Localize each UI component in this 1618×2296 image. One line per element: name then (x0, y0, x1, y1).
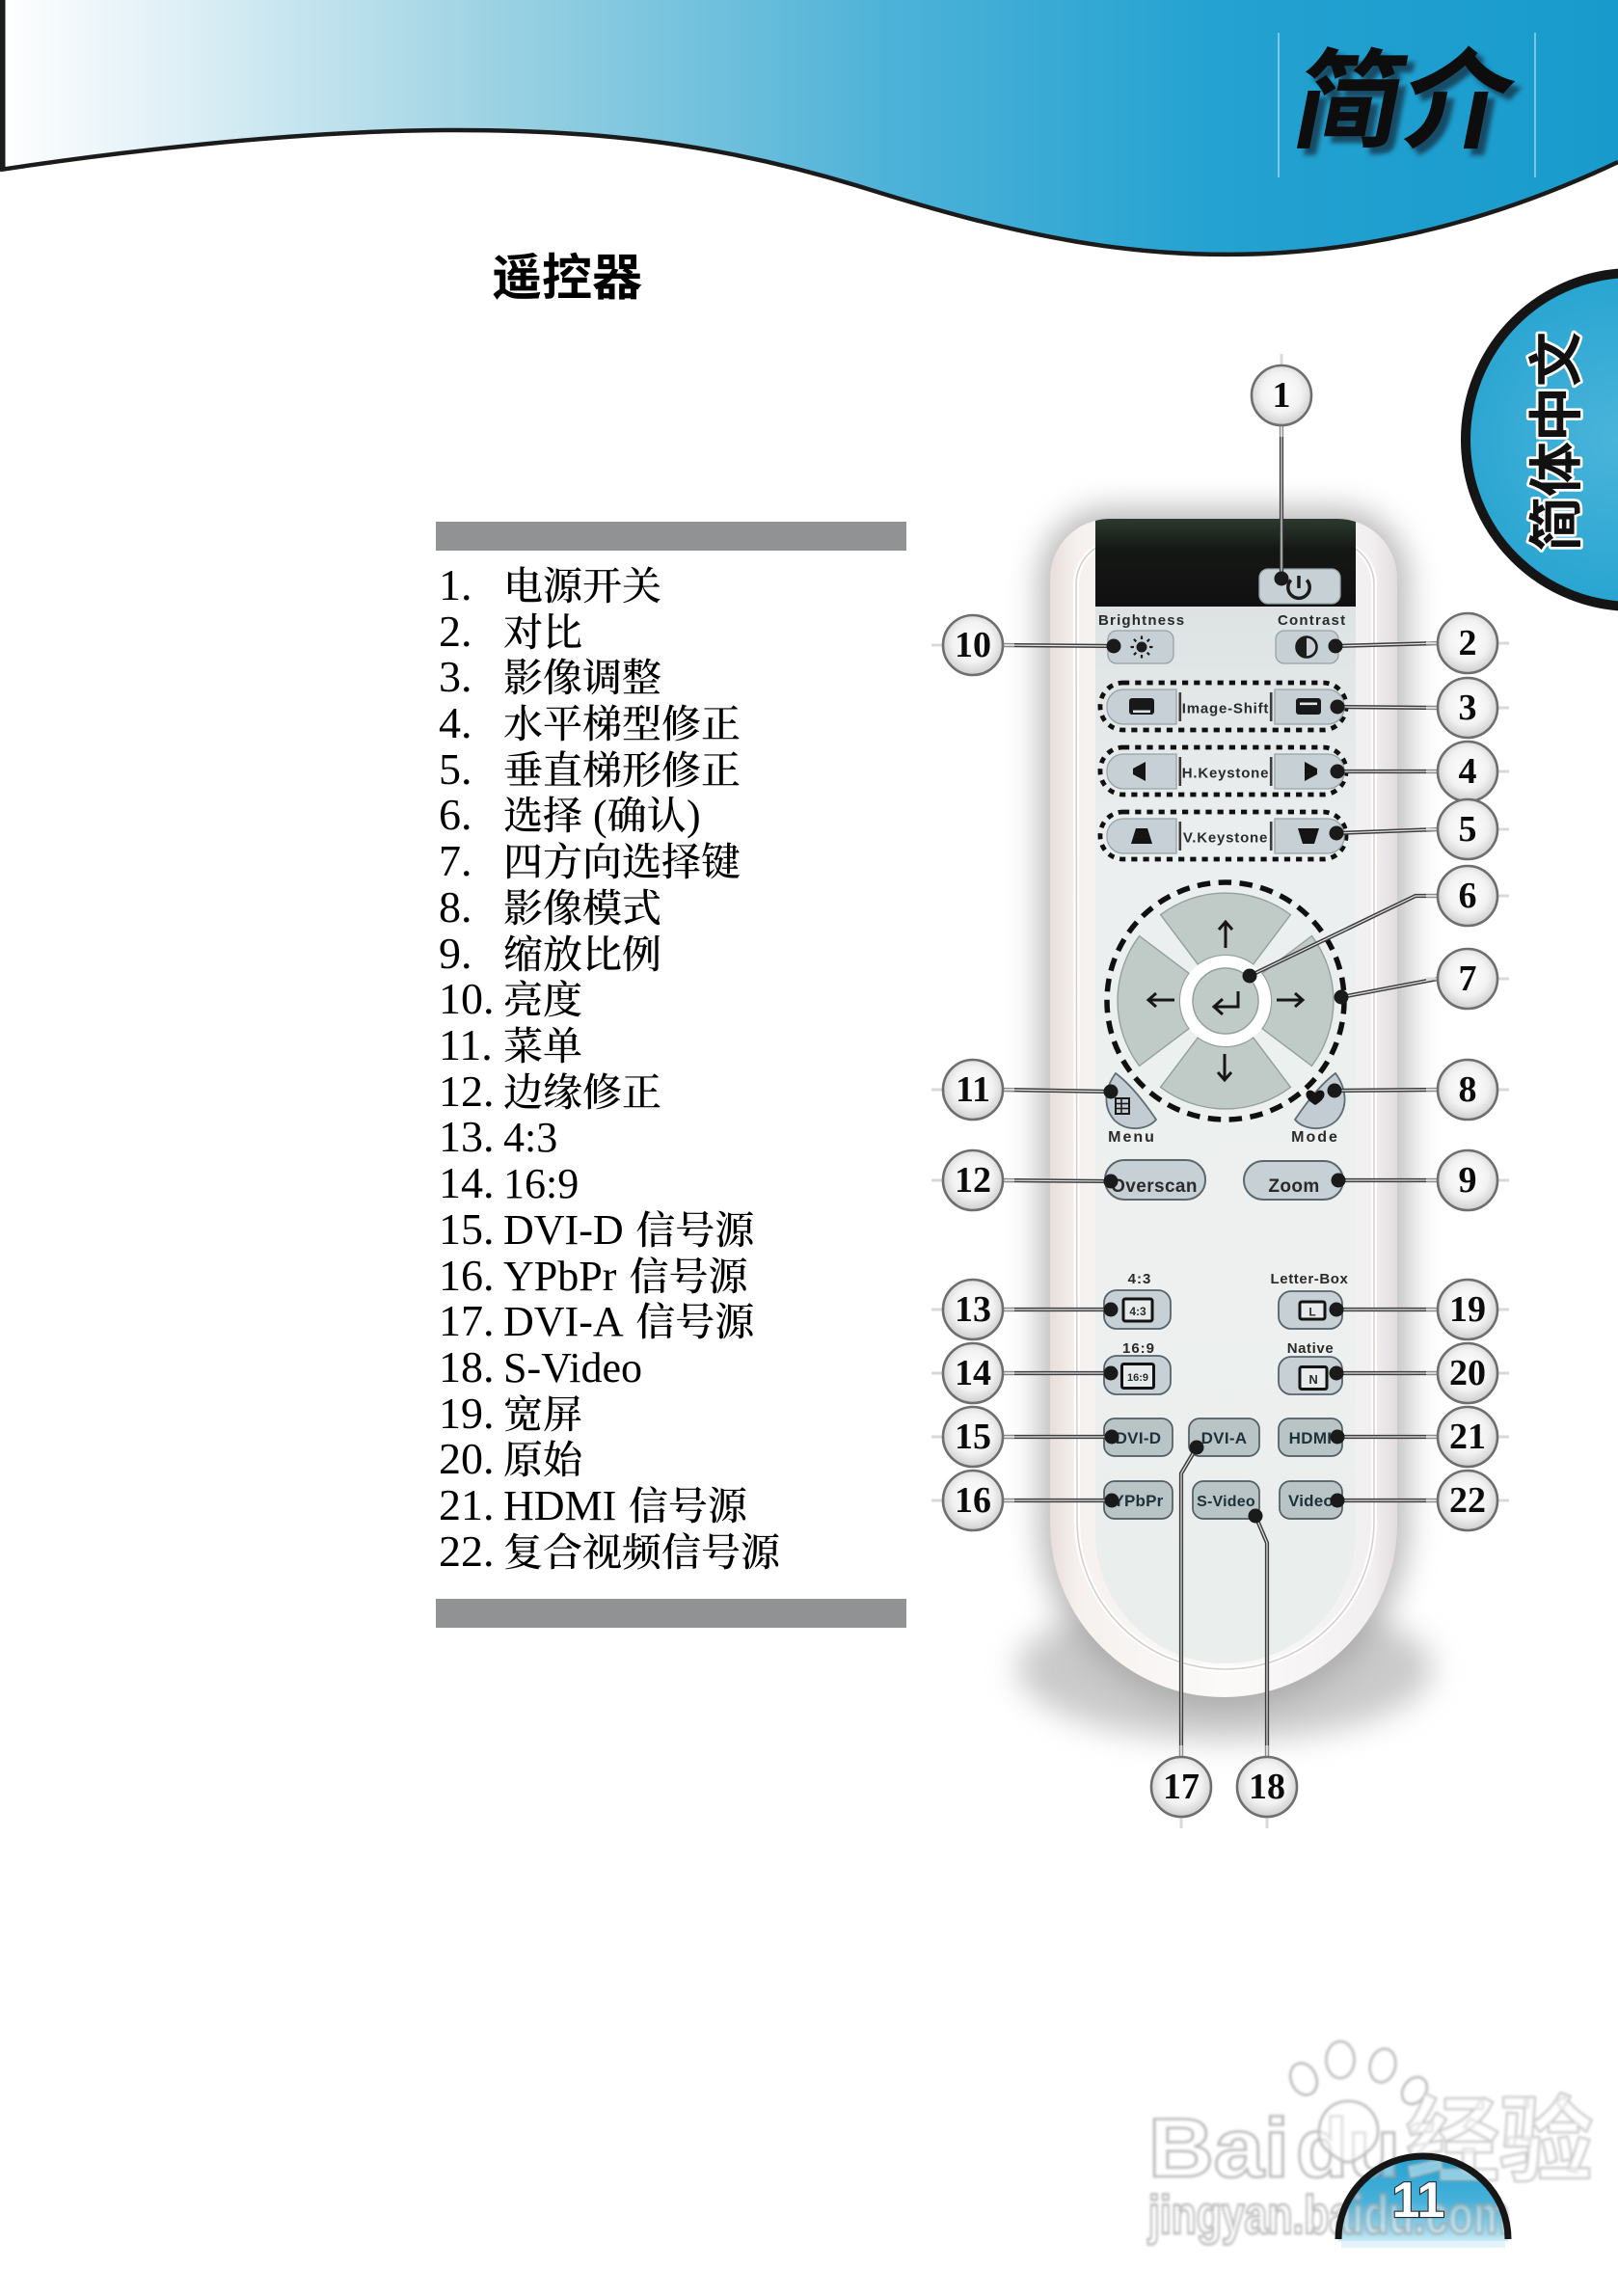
svg-text:19.: 19. (439, 1389, 495, 1438)
svg-text:DVI-D: DVI-D (1116, 1429, 1162, 1447)
svg-text:(: ( (593, 792, 607, 839)
svg-text:Bai: Bai (1148, 2102, 1289, 2195)
svg-text:7: 7 (1459, 959, 1477, 999)
svg-text:13.: 13. (439, 1112, 495, 1161)
svg-text:14.: 14. (439, 1158, 495, 1207)
svg-text:Menu: Menu (1108, 1129, 1156, 1146)
svg-text:8.: 8. (439, 882, 472, 932)
svg-text:3: 3 (1459, 688, 1477, 728)
svg-text:3.: 3. (439, 652, 472, 701)
svg-text:DVI-D: DVI-D (503, 1206, 624, 1254)
svg-text:HDMI: HDMI (503, 1482, 616, 1529)
svg-text:11: 11 (956, 1069, 990, 1110)
svg-text:14: 14 (955, 1353, 991, 1393)
svg-text:11: 11 (1392, 2173, 1445, 2228)
svg-text:N: N (1308, 1372, 1317, 1387)
svg-text:10: 10 (955, 625, 991, 665)
svg-text:4:3: 4:3 (1128, 1271, 1152, 1287)
svg-text:12: 12 (955, 1160, 991, 1201)
svg-text:19: 19 (1449, 1289, 1486, 1330)
svg-text:Letter-Box: Letter-Box (1270, 1271, 1348, 1287)
svg-text:18: 18 (1249, 1767, 1285, 1807)
svg-text:YPbPr: YPbPr (1113, 1492, 1163, 1510)
svg-text:L: L (1308, 1306, 1315, 1319)
svg-text:20: 20 (1449, 1353, 1486, 1393)
svg-text:16: 16 (955, 1480, 991, 1521)
svg-text:11.: 11. (439, 1020, 493, 1069)
svg-text:Overscan: Overscan (1111, 1176, 1198, 1197)
svg-text:5: 5 (1459, 809, 1477, 850)
svg-text:1.: 1. (439, 560, 472, 609)
svg-text:18.: 18. (439, 1342, 495, 1391)
svg-text:9: 9 (1459, 1160, 1477, 1201)
svg-text:6.: 6. (439, 790, 472, 839)
svg-text:S-Video: S-Video (1197, 1494, 1255, 1510)
svg-text:HDMI: HDMI (1289, 1429, 1333, 1447)
svg-text:13: 13 (955, 1289, 991, 1330)
svg-text:Zoom: Zoom (1268, 1176, 1319, 1197)
svg-text:jingyan.baidu.com: jingyan.baidu.com (1147, 2184, 1510, 2245)
svg-text:12.: 12. (439, 1067, 495, 1116)
svg-text:21.: 21. (439, 1480, 495, 1529)
svg-text:17.: 17. (439, 1296, 495, 1345)
svg-text:16.: 16. (439, 1251, 495, 1300)
svg-text:Mode: Mode (1291, 1129, 1339, 1146)
svg-text:): ) (687, 792, 701, 839)
svg-text:22: 22 (1449, 1480, 1486, 1521)
svg-text:22.: 22. (439, 1526, 495, 1576)
svg-text:4: 4 (1459, 751, 1477, 792)
svg-text:21: 21 (1449, 1417, 1486, 1457)
svg-text:Video: Video (1288, 1492, 1334, 1510)
svg-text:Contrast: Contrast (1278, 612, 1346, 629)
svg-text:1: 1 (1273, 375, 1291, 416)
svg-text:6: 6 (1459, 876, 1477, 916)
svg-text:4:3: 4:3 (1129, 1305, 1146, 1318)
svg-text:9.: 9. (439, 929, 472, 978)
svg-text:H.Keystone: H.Keystone (1182, 766, 1270, 782)
svg-text:7.: 7. (439, 836, 472, 885)
svg-text:V.Keystone: V.Keystone (1183, 830, 1268, 847)
svg-text:20.: 20. (439, 1434, 495, 1483)
svg-text:8: 8 (1459, 1069, 1477, 1110)
svg-text:S-Video: S-Video (503, 1344, 642, 1391)
svg-text:10.: 10. (439, 974, 495, 1023)
svg-text:4.: 4. (439, 698, 472, 747)
svg-text:17: 17 (1163, 1767, 1200, 1807)
svg-text:16:9: 16:9 (1127, 1372, 1148, 1384)
svg-text:2: 2 (1459, 623, 1477, 663)
svg-text:Brightness: Brightness (1098, 612, 1185, 629)
svg-text:Image-Shift: Image-Shift (1182, 701, 1269, 717)
svg-text:2.: 2. (439, 607, 472, 656)
svg-text:4:3: 4:3 (503, 1114, 557, 1161)
svg-text:16:9: 16:9 (1122, 1340, 1155, 1357)
svg-text:DVI-A: DVI-A (503, 1298, 624, 1345)
svg-text:DVI-A: DVI-A (1201, 1429, 1248, 1447)
svg-text:Native: Native (1287, 1340, 1335, 1357)
svg-text:16:9: 16:9 (503, 1160, 579, 1207)
svg-text:15.: 15. (439, 1204, 495, 1254)
svg-text:5.: 5. (439, 744, 472, 794)
svg-text:15: 15 (955, 1417, 991, 1457)
svg-text:YPbPr: YPbPr (503, 1253, 617, 1300)
